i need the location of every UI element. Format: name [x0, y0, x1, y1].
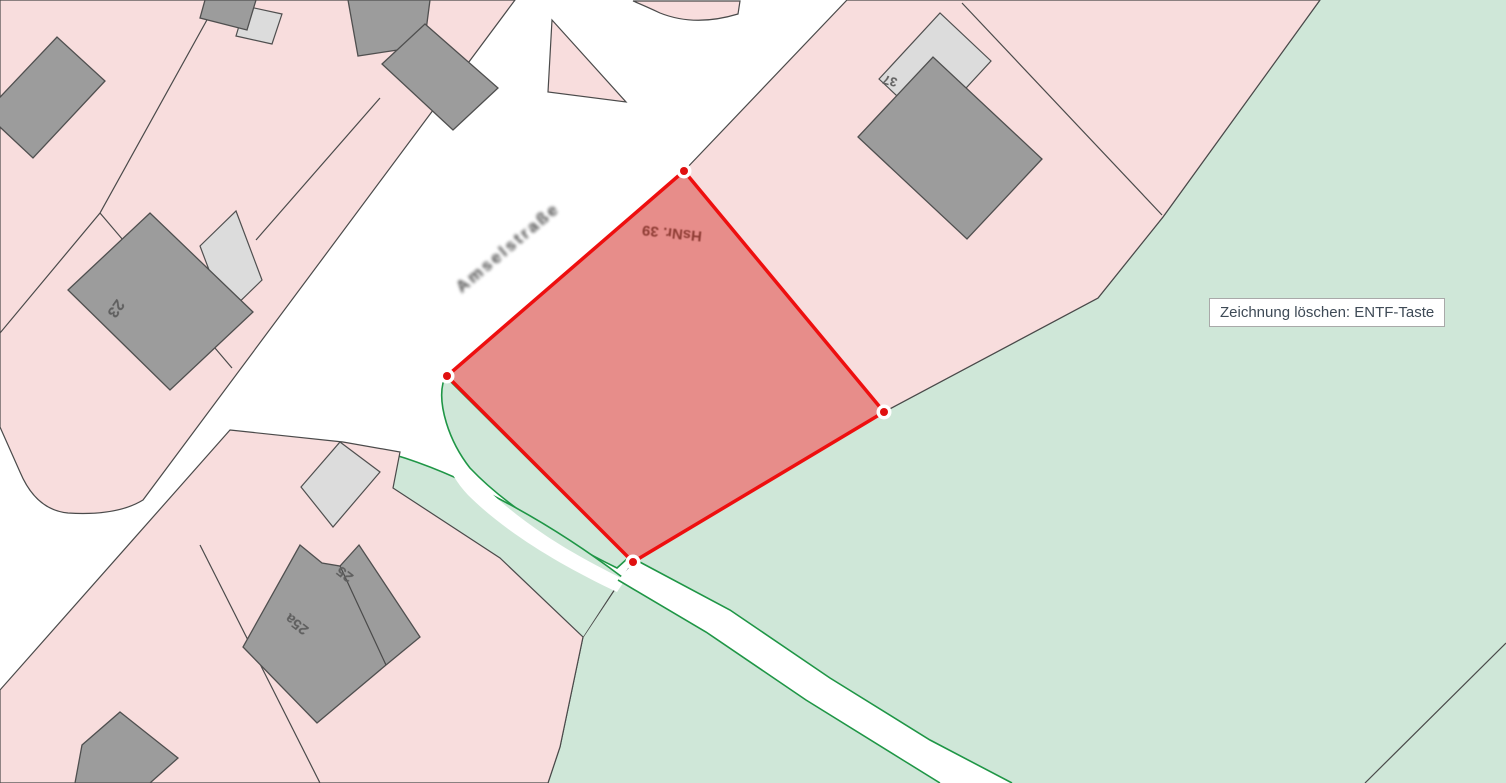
vertex-handle-left[interactable]	[440, 369, 455, 384]
map-canvas[interactable]	[0, 0, 1506, 783]
vertex-handle-top[interactable]	[677, 164, 692, 179]
delete-drawing-tooltip: Zeichnung löschen: ENTF-Taste	[1209, 298, 1445, 327]
vertex-handle-right[interactable]	[877, 405, 892, 420]
map-viewport[interactable]: Amselstraße HsNr. 39 23 25 25a 37 Zeichn…	[0, 0, 1506, 783]
vertex-handle-bottom[interactable]	[626, 555, 641, 570]
